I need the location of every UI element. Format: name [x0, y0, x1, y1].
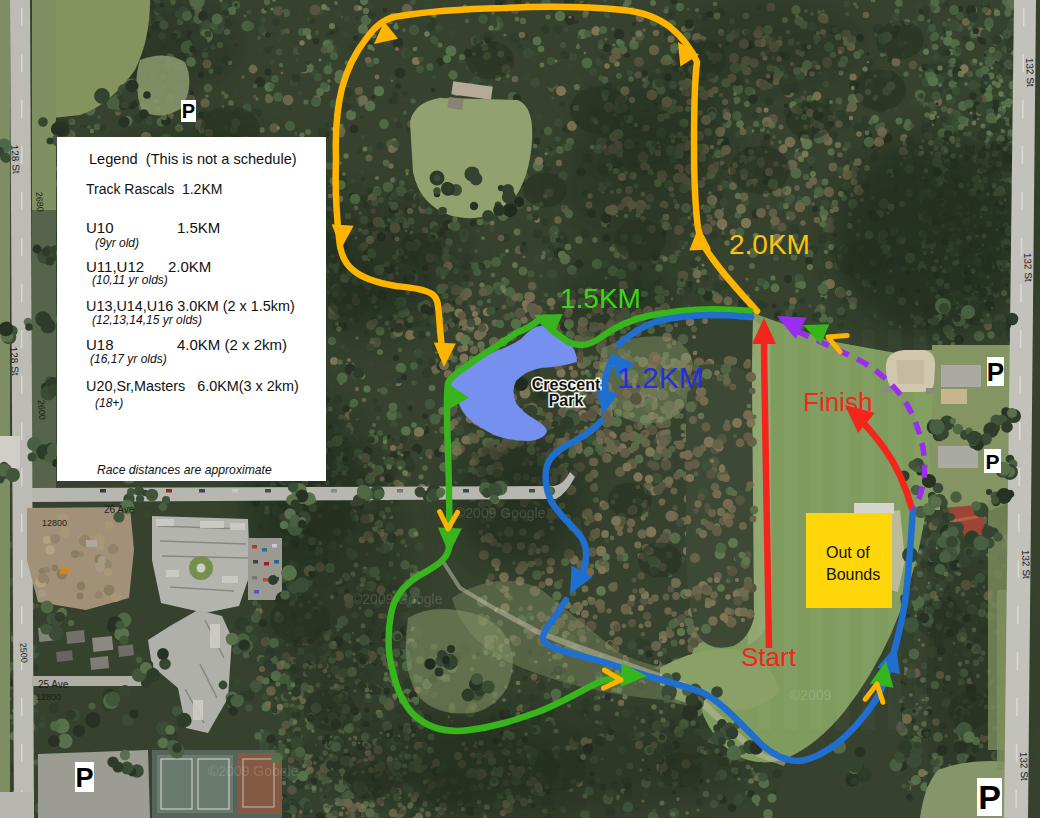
- svg-text:Crescent: Crescent: [532, 376, 601, 393]
- svg-text:12800: 12800: [36, 692, 61, 702]
- svg-text:128 St: 128 St: [9, 144, 22, 174]
- svg-text:2.0KM: 2.0KM: [729, 229, 810, 260]
- svg-text:(18+): (18+): [95, 396, 123, 410]
- svg-text:P: P: [978, 778, 1001, 816]
- svg-text:Race distances are approximate: Race distances are approximate: [97, 463, 272, 477]
- svg-text:2600: 2600: [36, 399, 47, 420]
- svg-text:P: P: [75, 763, 93, 793]
- svg-text:©2009: ©2009: [790, 687, 832, 703]
- svg-text:Out of: Out of: [826, 544, 870, 561]
- svg-text:12800: 12800: [42, 518, 67, 528]
- svg-text:P: P: [182, 100, 195, 122]
- svg-text:U20,Sr,Masters 6.0KM(3 x 2km: U20,Sr,Masters 6.0KM(3 x 2km): [86, 378, 299, 394]
- svg-text:Legend (This is not a schedul: Legend (This is not a schedule): [89, 151, 297, 167]
- svg-text:4.0KM (2 x 2km): 4.0KM (2 x 2km): [177, 336, 287, 353]
- svg-text:128 St: 128 St: [8, 346, 21, 376]
- svg-text:25 Ave: 25 Ave: [38, 679, 69, 690]
- svg-text:Park: Park: [549, 392, 584, 409]
- svg-text:1.2KM: 1.2KM: [617, 361, 704, 394]
- svg-text:Finish: Finish: [803, 387, 872, 417]
- svg-text:U10: U10: [86, 219, 114, 236]
- svg-text:2680: 2680: [34, 191, 45, 212]
- svg-text:2500: 2500: [18, 642, 29, 663]
- svg-text:U18: U18: [86, 336, 114, 353]
- svg-text:Start: Start: [741, 642, 797, 672]
- svg-text:P: P: [987, 357, 1004, 387]
- svg-text:1.5KM: 1.5KM: [177, 219, 220, 236]
- svg-text:132 St: 132 St: [1024, 58, 1036, 87]
- svg-text:(9yr old): (9yr old): [95, 236, 139, 250]
- svg-text:(10,11 yr olds): (10,11 yr olds): [92, 273, 168, 287]
- svg-text:P: P: [985, 450, 999, 473]
- svg-text:Bounds: Bounds: [826, 566, 880, 583]
- svg-text:2.0KM: 2.0KM: [168, 258, 211, 275]
- svg-text:©2009 Google: ©2009 Google: [208, 763, 299, 779]
- svg-text:132 St: 132 St: [1022, 253, 1034, 282]
- svg-text:Track Rascals 1.2KM: Track Rascals 1.2KM: [86, 181, 222, 197]
- svg-text:1.5KM: 1.5KM: [560, 283, 641, 314]
- svg-text:U13,U14,U16 3.0KM (2 x 1.5km): U13,U14,U16 3.0KM (2 x 1.5km): [86, 298, 295, 314]
- svg-text:132 St: 132 St: [1018, 752, 1030, 781]
- svg-text:©2009 Google: ©2009 Google: [455, 505, 546, 521]
- svg-text:(16,17 yr olds): (16,17 yr olds): [90, 352, 167, 366]
- svg-text:(12,13,14,15 yr olds): (12,13,14,15 yr olds): [92, 313, 202, 327]
- svg-text:26 Ave: 26 Ave: [104, 504, 135, 515]
- svg-text:132 St: 132 St: [1020, 550, 1032, 579]
